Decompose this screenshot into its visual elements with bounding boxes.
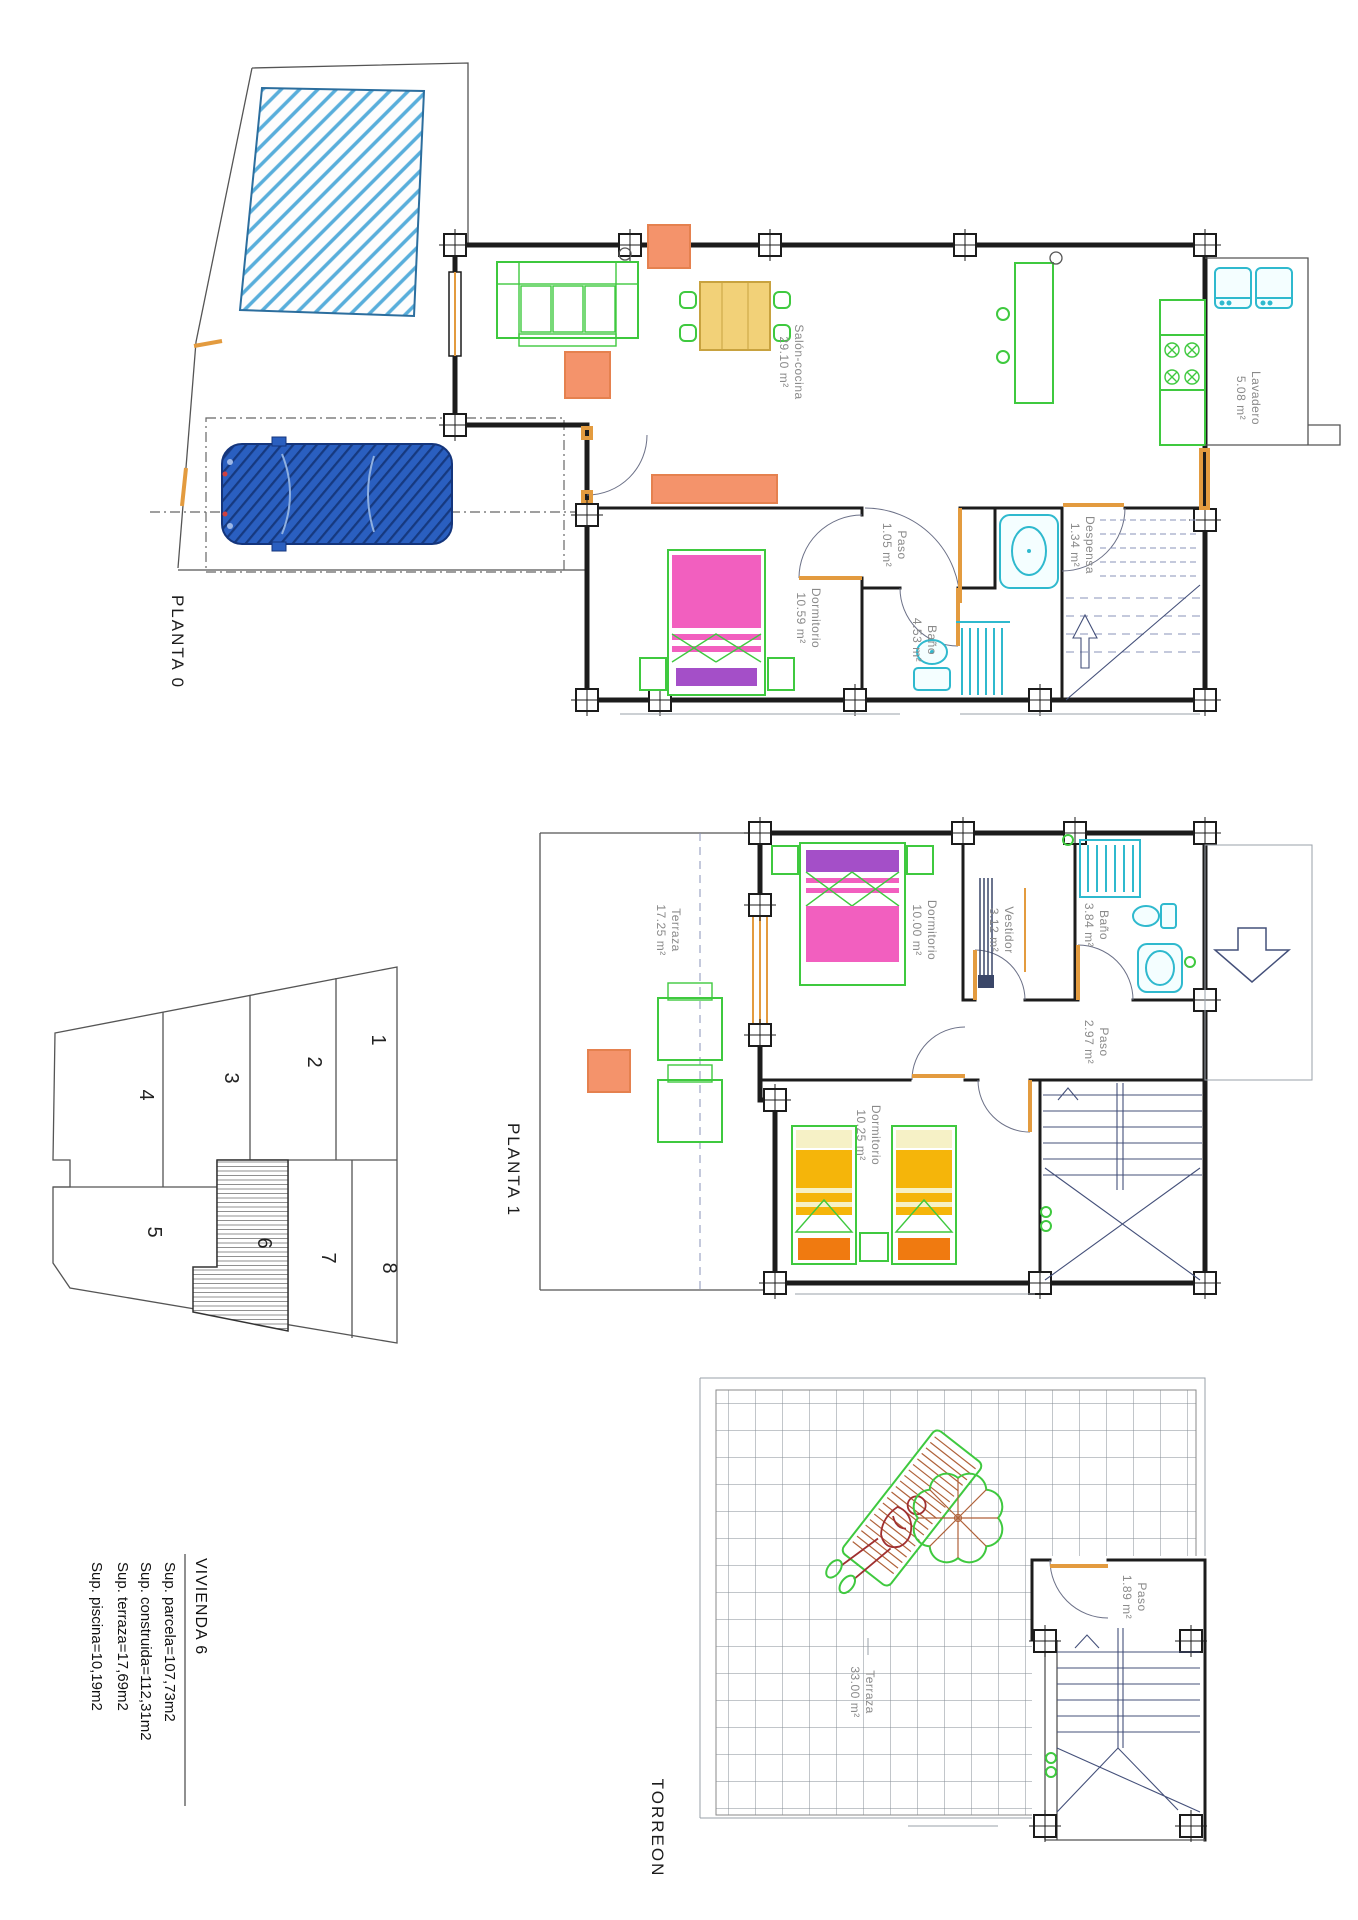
wall-light-icon	[1185, 957, 1195, 967]
torreon-plan: Terraza 33.00 m² Paso 1.89 m² TORREON	[648, 1378, 1208, 1877]
shower-icon	[1080, 840, 1140, 897]
svg-text:4.53 m²: 4.53 m²	[910, 618, 924, 662]
sink-icon	[1138, 944, 1182, 992]
torreon-title: TORREON	[648, 1779, 667, 1878]
double-bed	[772, 843, 933, 985]
plot-number-7: 7	[317, 1252, 339, 1263]
info-line-construida: Sup. construida=112,31m2	[137, 1562, 154, 1741]
svg-text:17.25 m²: 17.25 m²	[654, 904, 668, 955]
site-plan: 1 2 3 4 5 6 7 8	[53, 967, 400, 1343]
svg-text:Sup. construida=112,31m2: Sup. construida=112,31m2	[137, 1562, 154, 1741]
plot-number-3: 3	[220, 1072, 242, 1083]
svg-text:3.84 m²: 3.84 m²	[1082, 903, 1096, 947]
svg-text:Vestidor: Vestidor	[1002, 906, 1016, 953]
floor-plan-sheet: Salón-cocina 29.10 m² Paso 1.05 m² Dormi…	[0, 0, 1358, 1920]
dining-table	[680, 282, 790, 350]
planta1-plan: Terraza 17.25 m² Dormitorio 10.00 m² Ves…	[504, 817, 1312, 1299]
svg-text:Sup. parcela=107,73m2: Sup. parcela=107,73m2	[161, 1562, 178, 1722]
room-label-paso: Paso 2.97 m²	[1082, 1020, 1111, 1064]
svg-text:1.89 m²: 1.89 m²	[1120, 1575, 1134, 1619]
svg-text:5.08 m²: 5.08 m²	[1234, 376, 1248, 420]
ceiling-light-icon	[1050, 252, 1062, 264]
room-label-vestidor: Vestidor 3.12 m²	[987, 906, 1016, 953]
kitchen-counter	[997, 263, 1205, 445]
wall-light-icon	[1041, 1221, 1051, 1231]
svg-text:Terraza: Terraza	[669, 908, 683, 952]
svg-text:Paso: Paso	[1097, 1027, 1111, 1056]
sun-lounger	[658, 983, 722, 1060]
side-table	[648, 225, 690, 268]
room-label-bano: Baño 3.84 m²	[1082, 903, 1111, 947]
lavadero-annex	[1201, 258, 1340, 508]
info-title: VIVIENDA 6	[192, 1558, 209, 1655]
plot-number-5: 5	[143, 1226, 165, 1237]
svg-text:7: 7	[317, 1252, 339, 1263]
plot-number-1: 1	[367, 1034, 389, 1045]
sideboard	[652, 475, 777, 503]
planta0-stairs	[1066, 585, 1200, 700]
room-label-dormitorio-2: Dormitorio 10.25 m²	[854, 1105, 883, 1165]
stair-direction-arrow-icon	[1073, 615, 1097, 668]
svg-text:Dormitorio: Dormitorio	[809, 588, 823, 648]
svg-text:Baño: Baño	[1097, 910, 1111, 940]
room-label-dormitorio-1: Dormitorio 10.00 m²	[910, 900, 939, 960]
planta0-walls	[449, 245, 1205, 700]
room-label-lavadero: Lavadero 5.08 m²	[1234, 371, 1263, 425]
svg-text:TORREON: TORREON	[648, 1779, 667, 1878]
nightstand	[860, 1233, 888, 1261]
svg-text:1.05 m²: 1.05 m²	[880, 523, 894, 567]
svg-text:Lavadero: Lavadero	[1249, 371, 1263, 425]
room-label-dormitorio: Dormitorio 10.59 m²	[794, 588, 823, 648]
svg-text:6: 6	[253, 1237, 275, 1248]
stair-direction-arrow-icon	[1058, 1088, 1078, 1100]
sun-lounger	[658, 1065, 722, 1142]
svg-text:1.34 m²: 1.34 m²	[1068, 523, 1082, 567]
info-line-parcela: Sup. parcela=107,73m2	[161, 1562, 178, 1722]
svg-text:PLANTA 0: PLANTA 0	[168, 595, 187, 689]
exterior-landing	[1205, 845, 1312, 1080]
svg-text:Dormitorio: Dormitorio	[925, 900, 939, 960]
svg-text:1: 1	[367, 1034, 389, 1045]
info-line-piscina: Sup. piscina=10,19m2	[88, 1562, 105, 1711]
wall-light-icon	[1041, 1207, 1051, 1217]
svg-text:Paso: Paso	[895, 530, 909, 559]
svg-text:Dormitorio: Dormitorio	[869, 1105, 883, 1165]
svg-text:Sup. piscina=10,19m2: Sup. piscina=10,19m2	[88, 1562, 105, 1711]
info-line-terraza: Sup. terraza=17,69m2	[114, 1562, 131, 1711]
planta1-terrace	[540, 833, 775, 1290]
plot-number-2: 2	[303, 1056, 325, 1067]
room-label-despensa: Despensa 1.34 m²	[1068, 516, 1097, 574]
room-label-terraza: Terraza 17.25 m²	[654, 904, 683, 955]
sink-icon	[1000, 515, 1058, 588]
washer-icon	[1215, 268, 1251, 308]
room-label-salon-cocina: Salón-cocina 29.10 m²	[777, 324, 806, 399]
svg-text:Paso: Paso	[1135, 1582, 1149, 1611]
svg-text:2: 2	[303, 1056, 325, 1067]
svg-text:Terraza: Terraza	[863, 1670, 877, 1714]
svg-text:4: 4	[135, 1089, 157, 1100]
plot-number-4: 4	[135, 1089, 157, 1100]
twin-bed	[792, 1126, 856, 1264]
twin-bed	[892, 1126, 956, 1264]
svg-text:VIVIENDA 6: VIVIENDA 6	[192, 1558, 209, 1655]
gate-icon	[182, 468, 186, 506]
terrace-table	[588, 1050, 630, 1092]
plot-number-8: 8	[378, 1262, 400, 1273]
despensa-shelves	[1100, 520, 1198, 576]
info-block: VIVIENDA 6 Sup. parcela=107,73m2 Sup. co…	[88, 1554, 209, 1806]
planta0-columns	[439, 229, 1221, 716]
swimming-pool	[240, 88, 424, 316]
svg-text:33.00 m²: 33.00 m²	[848, 1666, 862, 1717]
svg-text:29.10 m²: 29.10 m²	[777, 336, 791, 387]
svg-text:PLANTA 1: PLANTA 1	[504, 1123, 523, 1217]
drawing-canvas: Salón-cocina 29.10 m² Paso 1.05 m² Dormi…	[0, 0, 1358, 1920]
svg-text:Salón-cocina: Salón-cocina	[792, 324, 806, 399]
planta1-stairs	[1043, 1083, 1202, 1280]
dryer-icon	[1256, 268, 1292, 308]
bathroom-fixtures	[914, 515, 1058, 695]
planta0-plan: Salón-cocina 29.10 m² Paso 1.05 m² Dormi…	[150, 63, 1340, 716]
shower-icon	[956, 622, 1010, 695]
coffee-table	[565, 352, 610, 398]
planta1-title: PLANTA 1	[504, 1123, 523, 1217]
gate-icon	[194, 341, 222, 346]
svg-text:3: 3	[220, 1072, 242, 1083]
plot-number-6: 6	[253, 1237, 275, 1248]
room-label-paso: Paso 1.05 m²	[880, 523, 909, 567]
svg-text:Despensa: Despensa	[1083, 516, 1097, 574]
car	[222, 437, 452, 551]
toilet-icon	[1133, 904, 1176, 928]
svg-text:10.25 m²: 10.25 m²	[854, 1109, 868, 1160]
svg-text:8: 8	[378, 1262, 400, 1273]
sofa	[497, 262, 638, 346]
double-bed	[640, 550, 794, 695]
svg-text:3.12 m²: 3.12 m²	[987, 908, 1001, 952]
svg-text:Sup. terraza=17,69m2: Sup. terraza=17,69m2	[114, 1562, 131, 1711]
planta0-title: PLANTA 0	[168, 595, 187, 689]
svg-text:10.59 m²: 10.59 m²	[794, 592, 808, 643]
svg-text:5: 5	[143, 1226, 165, 1237]
room-label-terraza: Terraza 33.00 m²	[848, 1666, 877, 1717]
garage-area	[150, 418, 583, 572]
svg-text:2.97 m²: 2.97 m²	[1082, 1020, 1096, 1064]
svg-text:Baño: Baño	[925, 625, 939, 655]
svg-text:10.00 m²: 10.00 m²	[910, 904, 924, 955]
entry-arrow-icon	[1215, 928, 1289, 982]
